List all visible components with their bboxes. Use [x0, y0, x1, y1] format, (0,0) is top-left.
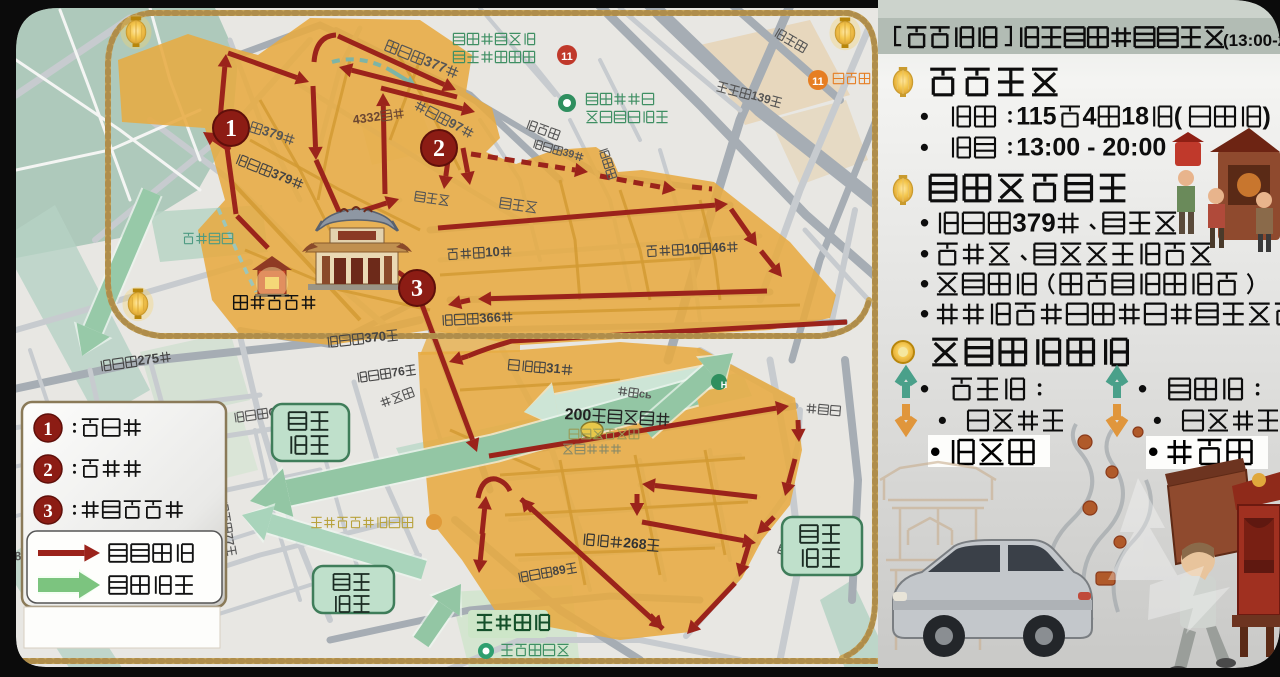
svg-text:(: (	[1174, 103, 1183, 131]
svg-text:370: 370	[364, 328, 387, 345]
svg-text:•: •	[1153, 407, 1162, 435]
svg-text:76: 76	[390, 364, 405, 380]
svg-text:•: •	[920, 103, 929, 131]
svg-text:(13:00-20:00: (13:00-20:00	[1223, 31, 1280, 50]
svg-text:•: •	[920, 134, 929, 162]
svg-text:•: •	[920, 373, 929, 403]
svg-text:89: 89	[551, 562, 567, 578]
svg-text:•: •	[1138, 373, 1147, 403]
svg-text:379: 379	[1012, 207, 1055, 237]
svg-text:13:00 - 20:00: 13:00 - 20:00	[1016, 134, 1166, 162]
svg-text:11: 11	[812, 76, 824, 88]
svg-text:H: H	[721, 380, 728, 390]
svg-text:115: 115	[1016, 103, 1056, 131]
svg-text:•: •	[920, 298, 929, 328]
svg-text:1: 1	[225, 116, 237, 142]
svg-text:сь: сь	[638, 388, 653, 402]
svg-text:): )	[1263, 103, 1271, 131]
svg-text:3: 3	[43, 501, 53, 522]
svg-text:10: 10	[485, 244, 500, 260]
svg-text:275: 275	[136, 350, 160, 368]
svg-text:11: 11	[561, 51, 573, 63]
svg-text:268: 268	[623, 534, 648, 552]
svg-text:•: •	[920, 238, 929, 268]
svg-text:4: 4	[1083, 103, 1097, 131]
svg-text:18: 18	[1121, 103, 1149, 131]
svg-text:2: 2	[433, 136, 445, 162]
svg-text:31: 31	[546, 360, 562, 376]
svg-text:10: 10	[684, 241, 699, 257]
svg-text:46: 46	[711, 239, 726, 255]
svg-text:200: 200	[564, 406, 592, 424]
svg-text:1: 1	[43, 419, 53, 440]
svg-text:2: 2	[43, 460, 53, 481]
svg-text:366: 366	[479, 310, 501, 326]
svg-text:3: 3	[411, 276, 423, 302]
svg-text:•: •	[920, 268, 929, 298]
svg-text:•: •	[920, 207, 929, 237]
svg-text:•: •	[1148, 436, 1159, 469]
svg-text:•: •	[938, 407, 947, 435]
